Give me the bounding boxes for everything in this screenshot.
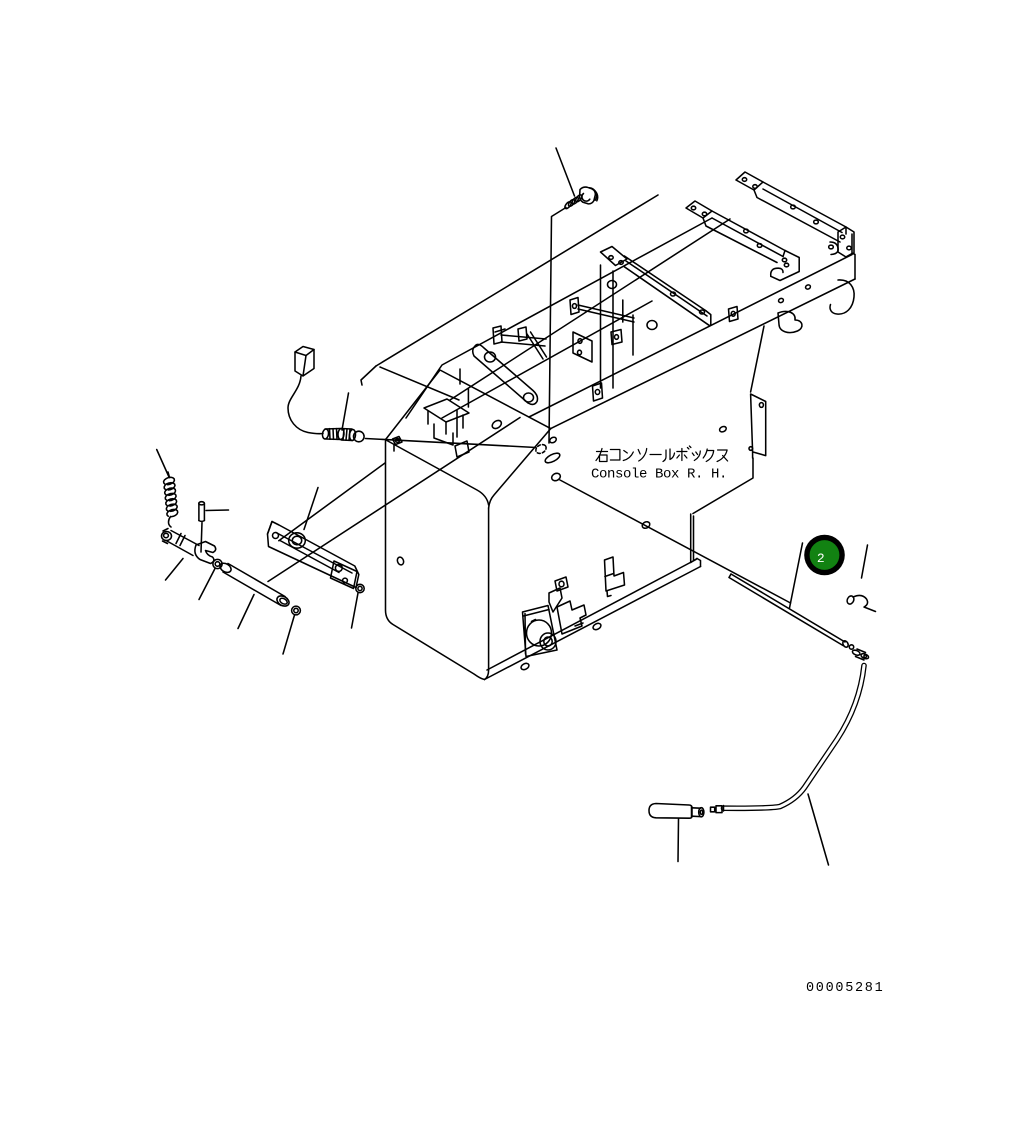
svg-text:Console Box R. H.: Console Box R. H.	[591, 467, 727, 483]
svg-text:2: 2	[817, 551, 825, 566]
svg-text:00005281: 00005281	[806, 981, 884, 996]
